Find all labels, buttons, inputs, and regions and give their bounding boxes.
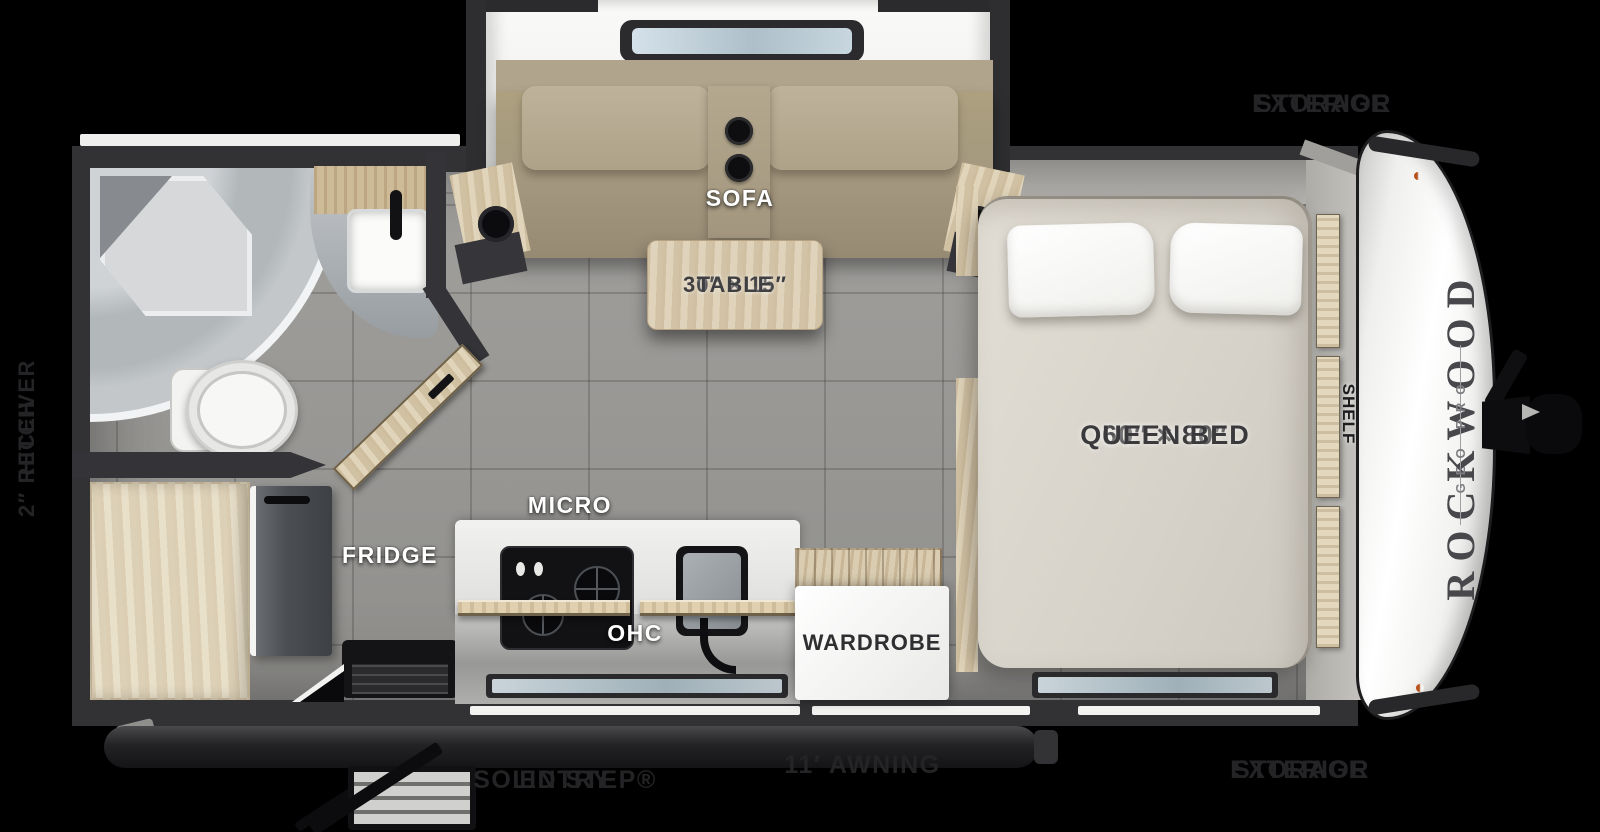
slideout-roof-right	[878, 0, 990, 12]
bedroom-window	[1032, 672, 1278, 698]
ohc-label: OHC	[560, 618, 710, 648]
wall-exterior-trim	[80, 134, 460, 146]
awning-label-text: 11′ AWNING	[784, 749, 940, 783]
microwave-label-text: MICRO	[528, 492, 612, 519]
slideout-roof-left	[486, 0, 598, 12]
refrigerator	[250, 486, 332, 656]
bathroom-faucet-icon	[390, 190, 402, 240]
exterior-storage-label-top: EXTERIOR STORAGE	[1222, 72, 1422, 138]
wardrobe: WARDROBE	[795, 586, 949, 700]
shelf-label-text: SHELF	[1338, 384, 1358, 445]
storage-cabinet	[90, 482, 250, 700]
cupholder-icon	[725, 117, 753, 145]
bed-base-trim	[956, 186, 978, 276]
rv-floorplan: SOFA 30″ × 15″ TABLE FRIDGE	[0, 0, 1600, 832]
fridge-label-text: FRIDGE	[342, 542, 438, 569]
queen-bed-label: 60″ × 80″ QUEEN BED	[1040, 398, 1290, 474]
slideout-window	[620, 20, 864, 62]
overhead-cabinet-right	[640, 600, 795, 616]
kitchen-window	[486, 674, 788, 698]
cupholder-icon	[478, 206, 514, 242]
microwave-label: MICRO	[490, 490, 650, 520]
hitch-coupler-icon	[1526, 394, 1582, 454]
bed-base-trim	[956, 378, 978, 672]
cupholder-icon	[725, 154, 753, 182]
dinette-table: 30″ × 15″ TABLE	[647, 240, 823, 330]
table-label: TABLE	[697, 272, 774, 298]
receiver-hitch-label: 2″ RECEIVER HITCH	[0, 298, 63, 578]
vanity-shelf	[314, 166, 434, 214]
pillow	[1007, 222, 1155, 318]
interior-entry-step	[342, 640, 458, 698]
wall-rear	[72, 146, 90, 726]
entry-step-treads	[352, 664, 448, 694]
cooktop-knob-icon	[516, 562, 525, 576]
slideout-window-glass	[632, 28, 852, 54]
awning-end-bracket	[1034, 730, 1058, 764]
wall-window-strip-3	[1078, 706, 1320, 715]
brand-subname: GEO PRO	[1453, 377, 1468, 494]
hitch-label-line2: HITCH	[13, 401, 42, 476]
bed-label-text: QUEEN BED	[1080, 419, 1250, 453]
slideout-wall-left	[466, 0, 486, 172]
cooktop-knob-icon	[534, 562, 543, 576]
bathroom-wall	[426, 152, 446, 298]
shelf-plank	[1316, 214, 1340, 348]
wardrobe-label: WARDROBE	[803, 630, 942, 656]
wall-window-strip-2	[812, 706, 1030, 715]
sofa-label-text: SOFA	[706, 185, 775, 212]
pillow	[1169, 222, 1303, 315]
exterior-storage-label-bottom: EXTERIOR STORAGE	[1200, 738, 1400, 804]
sofa-label: SOFA	[640, 182, 840, 214]
exterior-storage-top-line2: STORAGE	[1255, 88, 1389, 122]
door-handle-icon	[427, 373, 454, 400]
bathroom-sink	[350, 212, 426, 290]
awning-label: 11′ AWNING	[760, 750, 965, 782]
solid-step-entry-label: SOLID STEP® ENTRY	[465, 748, 665, 814]
shelf-plank	[1316, 506, 1340, 648]
sofa-cushion-right	[768, 86, 958, 170]
bathroom-wall-bottom	[72, 452, 326, 478]
slideout-wall-right	[990, 0, 1010, 172]
exterior-storage-bottom-line2: STORAGE	[1233, 754, 1367, 788]
entry-label-line2: ENTRY	[519, 764, 610, 798]
sofa-cushion-left	[522, 86, 710, 170]
overhead-cabinet-left	[458, 600, 630, 616]
fridge-handle-icon	[264, 496, 310, 504]
bedroom-window-glass	[1038, 677, 1272, 693]
fridge-label: FRIDGE	[310, 540, 470, 570]
wall-window-strip-1	[470, 706, 800, 715]
toilet	[186, 360, 298, 460]
ohc-label-text: OHC	[607, 620, 663, 647]
kitchen-window-glass	[492, 679, 782, 693]
